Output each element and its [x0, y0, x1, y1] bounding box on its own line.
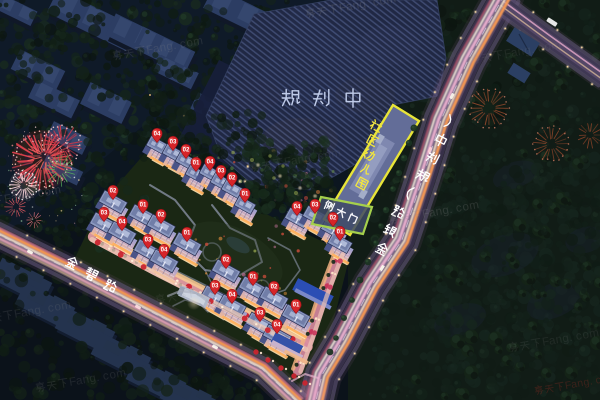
svg-text:03: 03: [170, 139, 177, 146]
svg-text:04: 04: [154, 131, 161, 138]
svg-text:02: 02: [271, 284, 278, 291]
svg-text:04: 04: [294, 204, 301, 211]
svg-text:04: 04: [119, 219, 126, 226]
svg-text:02: 02: [183, 147, 190, 154]
svg-text:03: 03: [257, 310, 264, 317]
svg-text:01: 01: [250, 274, 257, 281]
svg-text:02: 02: [330, 215, 337, 222]
svg-text:01: 01: [242, 191, 249, 198]
svg-text:02: 02: [223, 257, 230, 264]
svg-text:04: 04: [161, 247, 168, 254]
svg-text:01: 01: [293, 302, 300, 309]
svg-text:01: 01: [140, 202, 147, 209]
svg-text:02: 02: [158, 212, 165, 219]
svg-text:03: 03: [145, 237, 152, 244]
svg-text:02: 02: [110, 188, 117, 195]
svg-text:01: 01: [184, 230, 191, 237]
svg-text:03: 03: [218, 168, 225, 175]
svg-text:c: c: [595, 374, 600, 387]
svg-text:01: 01: [337, 229, 344, 236]
svg-text:04: 04: [207, 159, 214, 166]
svg-text:04: 04: [274, 322, 281, 329]
svg-text:03: 03: [312, 202, 319, 209]
svg-text:03: 03: [101, 210, 108, 217]
svg-text:01: 01: [193, 160, 200, 167]
svg-text:02: 02: [229, 175, 236, 182]
